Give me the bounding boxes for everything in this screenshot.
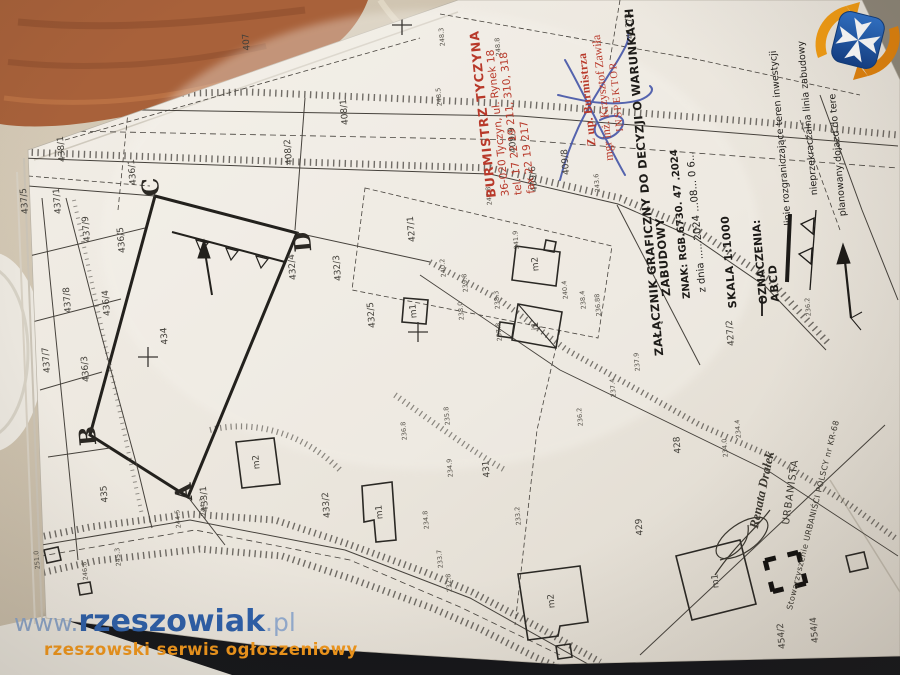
watermark-url: www.rzeszowiak.pl [14, 604, 296, 639]
elevation-label: 244.3 [198, 497, 208, 516]
elevation-label: 239.8 [460, 273, 470, 292]
parcel-label: 437/1 [52, 188, 64, 215]
elevation-label: 240.2 [438, 258, 448, 277]
elevation-label: 236.2 [803, 297, 813, 316]
elevation-label: 234.4 [733, 419, 743, 438]
parcel-label: 436/3 [80, 356, 92, 383]
parcel-label: 427/1 [406, 216, 418, 243]
parcel-label: 429 [634, 518, 645, 536]
elevation-label: 243.6 [592, 173, 602, 192]
parcel-label: 407 [241, 33, 252, 51]
parcel-label: 436/4 [101, 290, 113, 317]
elevation-label: 234.0 [720, 438, 730, 457]
elevation-label: 238.0 [456, 301, 466, 320]
building-label: m2 [251, 454, 262, 469]
elevation-label: 238.4 [578, 290, 588, 309]
elevation-label: 241.9 [511, 230, 521, 249]
parcel-label: 408/1 [339, 99, 351, 126]
elevation-label: 251.0 [32, 550, 42, 569]
elevation-label: 233.2 [513, 506, 523, 525]
elevation-label: 232.8 [444, 573, 454, 592]
building-label: m1 [710, 573, 721, 588]
parcel-label: 408/2 [283, 139, 295, 166]
elevation-label: 236.8 [399, 421, 409, 440]
watermark-tagline: rzeszowski serwis ogłoszeniowy [44, 640, 358, 659]
watermark-url-name: rzeszowiak [78, 604, 265, 639]
parcel-label: 433/2 [321, 492, 333, 519]
photographed-map-document: 407408/2408/1409/9409/6409/8412/2427/142… [0, 0, 900, 675]
parcel-label: 437/9 [81, 216, 93, 243]
parcel-label: 434 [159, 327, 170, 345]
elevation-label: 236.2 [575, 407, 585, 426]
parcel-label: 454/2 [776, 623, 788, 650]
parcel-label: 427/2 [725, 320, 737, 347]
parcel-label: 435 [99, 485, 110, 503]
parcel-label: 438/1 [56, 136, 68, 163]
building-label: m2 [530, 256, 541, 271]
parcel-label: 437/7 [41, 347, 53, 374]
elevation-label: 234.8 [421, 510, 431, 529]
elevation-label: 245.3 [113, 547, 123, 566]
building-label: m2 [546, 593, 557, 608]
parcel-label: 432/5 [366, 302, 378, 329]
parcel-label: 454/4 [809, 617, 821, 644]
building-label: m1 [374, 504, 385, 519]
elevation-label: 235.8 [442, 406, 452, 425]
elevation-label: 240.4 [560, 280, 570, 299]
parcel-label: 432/3 [332, 255, 344, 282]
elevation-label: 237.4 [608, 378, 618, 397]
elevation-label: 233.7 [435, 549, 445, 568]
parcel-label: 428 [672, 436, 683, 454]
elevation-label: 246.8 [80, 561, 90, 580]
parcel-label: 436/5 [116, 227, 128, 254]
corner-letter: D [289, 231, 318, 253]
corner-letter: B [74, 425, 103, 447]
elevation-label: 244.5 [173, 509, 183, 528]
parcel-label: 409/8 [560, 149, 572, 176]
watermark-url-prefix: www. [14, 609, 78, 637]
parcel-label: 432/4 [287, 254, 299, 281]
building-label: m1 [408, 303, 419, 318]
elevation-label: 237.9 [632, 352, 642, 371]
corner-letter: A [170, 482, 198, 502]
elevation-label: 238.3 [492, 290, 502, 309]
elevation-label: 248.5 [434, 87, 444, 106]
parcel-label: 431 [481, 460, 492, 478]
elevation-label: 234.9 [445, 458, 455, 477]
elevation-label: 248.3 [437, 27, 447, 46]
elevation-label: 237.8 [494, 322, 504, 341]
parcel-label: 437/5 [19, 188, 31, 215]
watermark-url-suffix: .pl [265, 608, 296, 637]
building-label: i1 [531, 321, 542, 330]
corner-letter: C [137, 177, 165, 198]
parcel-label: 437/8 [62, 287, 74, 314]
